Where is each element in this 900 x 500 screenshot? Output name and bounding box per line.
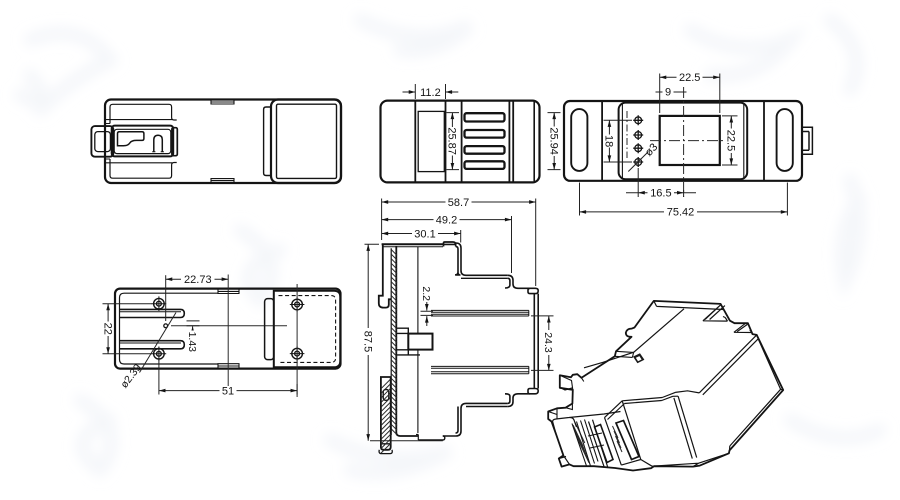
svg-text:22.5: 22.5 xyxy=(679,72,700,84)
svg-text:51: 51 xyxy=(222,385,234,397)
svg-text:75.42: 75.42 xyxy=(667,207,695,219)
svg-text:58.7: 58.7 xyxy=(448,197,469,209)
svg-text:30.1: 30.1 xyxy=(414,228,435,240)
svg-text:25.94: 25.94 xyxy=(547,127,559,155)
svg-text:16.5: 16.5 xyxy=(650,187,671,199)
svg-text:9: 9 xyxy=(665,87,671,99)
svg-text:22.73: 22.73 xyxy=(184,274,212,286)
svg-text:2.2: 2.2 xyxy=(420,286,432,301)
svg-text:87.5: 87.5 xyxy=(361,331,373,352)
svg-text:22.5: 22.5 xyxy=(725,130,737,151)
svg-text:22: 22 xyxy=(101,323,113,335)
svg-text:25.87: 25.87 xyxy=(446,127,458,155)
svg-text:1.43: 1.43 xyxy=(186,332,198,353)
svg-text:24.3: 24.3 xyxy=(542,332,554,353)
svg-text:11.2: 11.2 xyxy=(420,87,441,99)
svg-text:18: 18 xyxy=(603,135,615,147)
svg-text:49.2: 49.2 xyxy=(436,214,457,226)
